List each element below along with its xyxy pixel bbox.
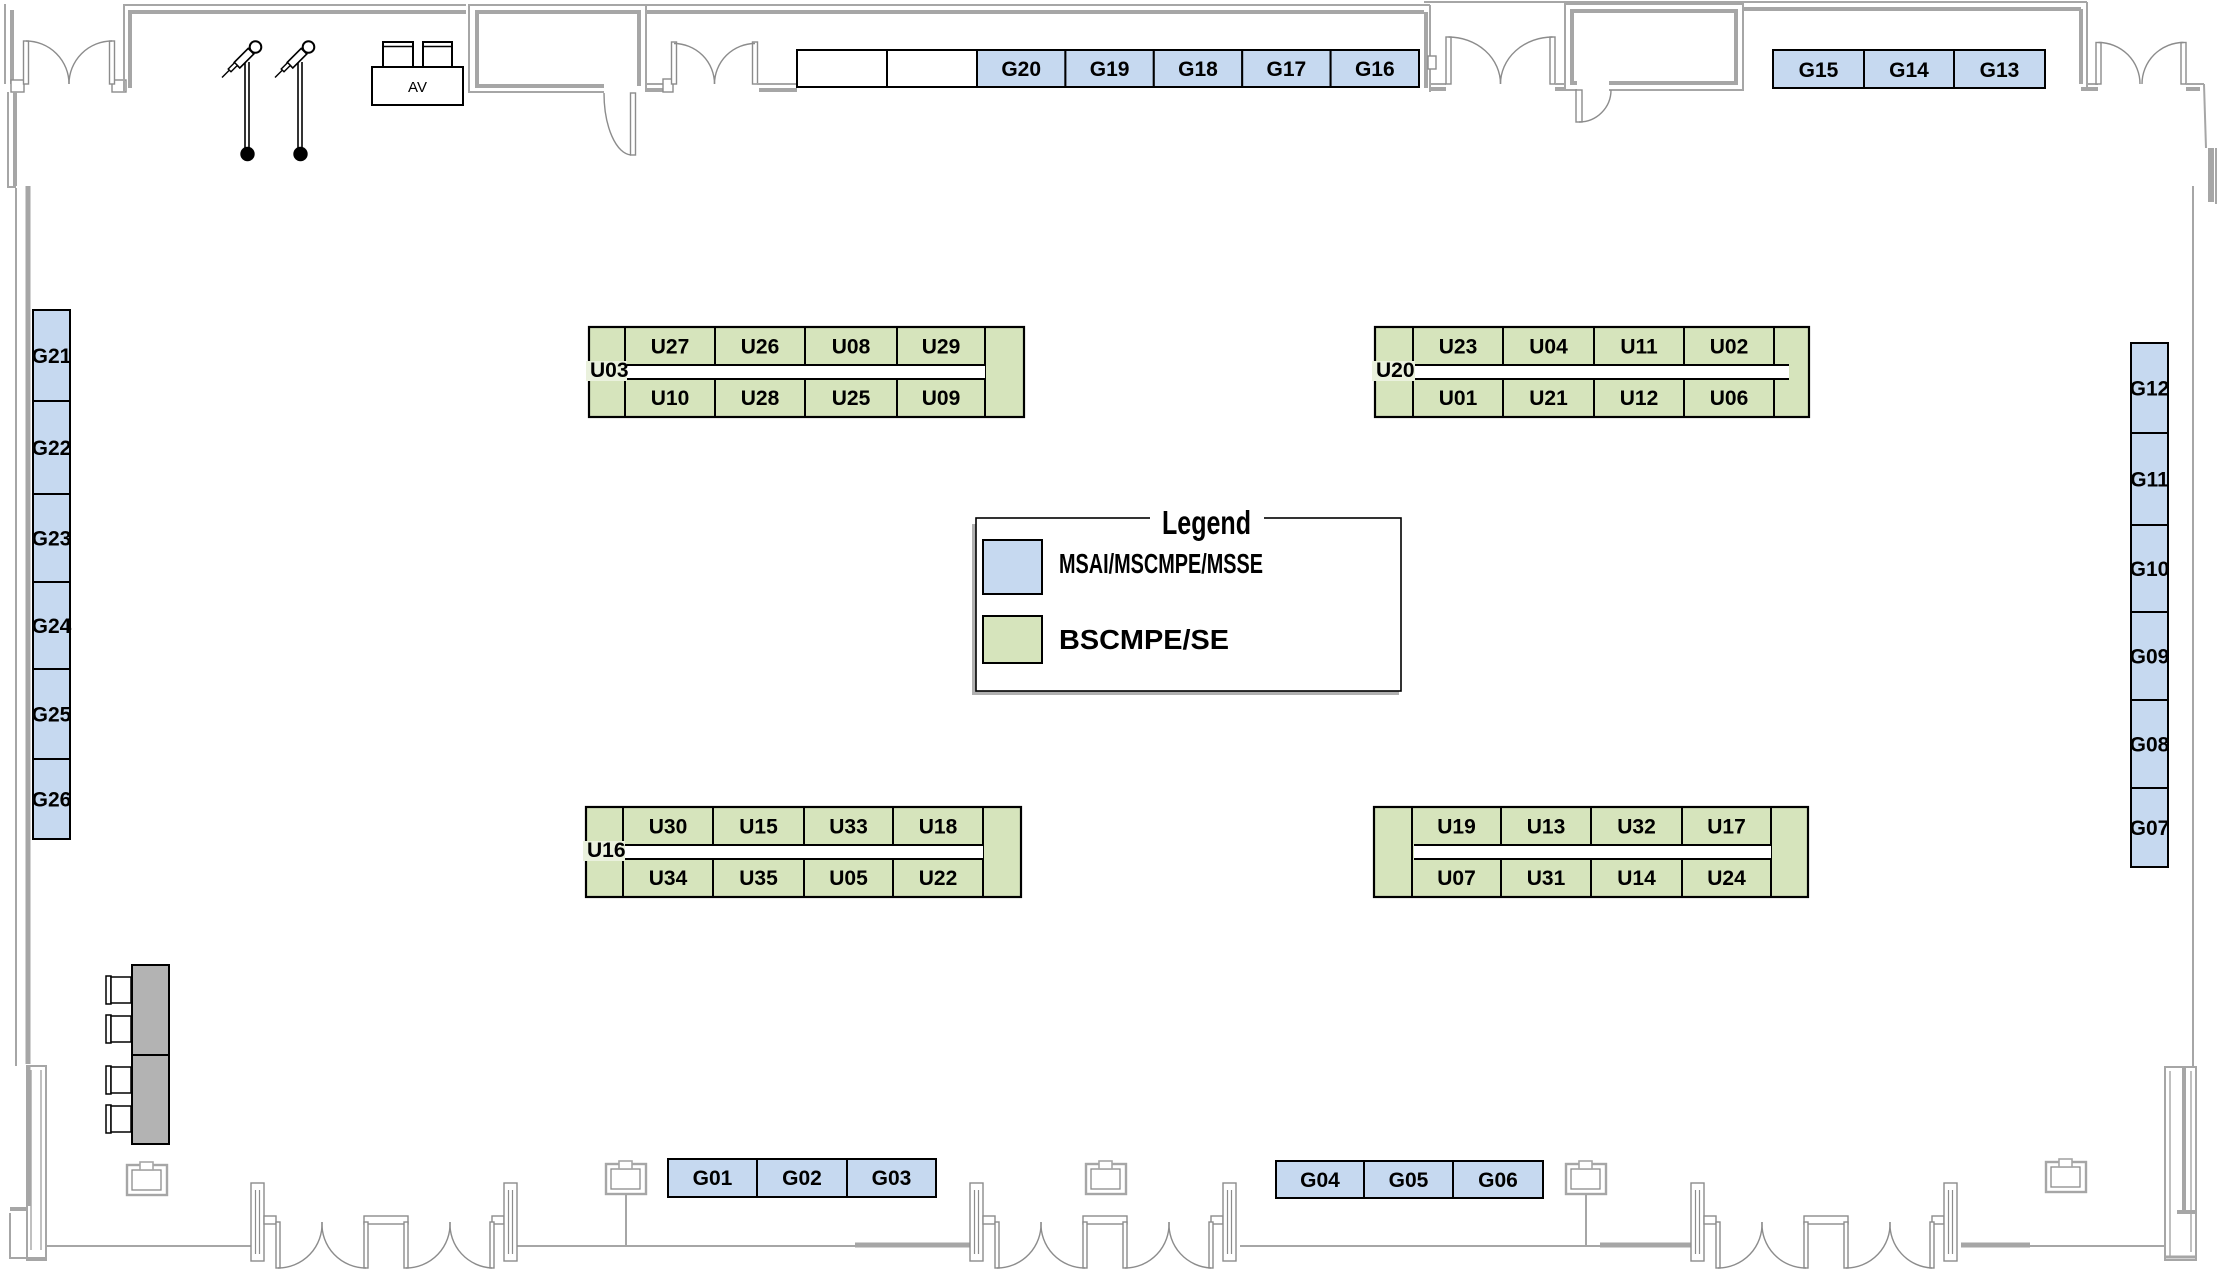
svg-text:U34: U34	[649, 867, 688, 890]
svg-text:G13: G13	[1980, 59, 2020, 82]
svg-text:U11: U11	[1620, 336, 1658, 359]
svg-text:U19: U19	[1437, 816, 1476, 839]
svg-text:G21: G21	[32, 345, 72, 368]
svg-text:U06: U06	[1710, 387, 1749, 410]
svg-text:G06: G06	[1478, 1169, 1518, 1192]
svg-text:U05: U05	[829, 867, 868, 890]
svg-text:G01: G01	[693, 1167, 733, 1190]
svg-text:G15: G15	[1799, 59, 1839, 82]
svg-text:U27: U27	[651, 336, 690, 359]
svg-text:U10: U10	[651, 387, 690, 410]
svg-text:U33: U33	[829, 816, 868, 839]
svg-text:G12: G12	[2130, 378, 2170, 401]
svg-text:U29: U29	[922, 336, 961, 359]
svg-text:G07: G07	[2130, 817, 2170, 840]
svg-text:U18: U18	[919, 816, 958, 839]
svg-text:U17: U17	[1707, 816, 1746, 839]
svg-text:U22: U22	[919, 867, 958, 890]
svg-text:G09: G09	[2130, 646, 2170, 669]
svg-text:U13: U13	[1527, 816, 1566, 839]
svg-text:U04: U04	[1529, 336, 1568, 359]
svg-text:U12: U12	[1620, 387, 1659, 410]
svg-text:G16: G16	[1355, 58, 1395, 81]
svg-text:U01: U01	[1439, 387, 1478, 410]
svg-text:G17: G17	[1267, 58, 1307, 81]
svg-text:G10: G10	[2130, 558, 2170, 581]
svg-text:G26: G26	[32, 789, 72, 812]
svg-text:G18: G18	[1178, 58, 1218, 81]
svg-text:AV: AV	[408, 79, 427, 96]
svg-text:G11: G11	[2130, 469, 2169, 492]
svg-text:U16: U16	[587, 839, 626, 862]
svg-text:U30: U30	[649, 816, 688, 839]
svg-text:U23: U23	[1439, 336, 1478, 359]
svg-text:U14: U14	[1617, 867, 1656, 890]
svg-text:U32: U32	[1617, 816, 1656, 839]
svg-text:U03: U03	[590, 359, 629, 382]
svg-text:U02: U02	[1710, 336, 1749, 359]
svg-text:G08: G08	[2130, 734, 2170, 757]
svg-text:G19: G19	[1090, 58, 1130, 81]
svg-text:U21: U21	[1529, 387, 1568, 410]
svg-text:G14: G14	[1889, 59, 1929, 82]
svg-text:U35: U35	[739, 867, 778, 890]
svg-text:G20: G20	[1001, 58, 1041, 81]
svg-text:G23: G23	[32, 528, 72, 551]
svg-text:U09: U09	[922, 387, 961, 410]
svg-text:U07: U07	[1437, 867, 1476, 890]
svg-text:MSAI/MSCMPE/MSSE: MSAI/MSCMPE/MSSE	[1059, 548, 1263, 579]
svg-text:G25: G25	[32, 704, 72, 727]
svg-text:G03: G03	[872, 1167, 912, 1190]
svg-text:U26: U26	[741, 336, 780, 359]
svg-text:G22: G22	[32, 437, 72, 460]
svg-text:U08: U08	[832, 336, 871, 359]
svg-text:Legend: Legend	[1162, 504, 1251, 541]
svg-text:U25: U25	[832, 387, 871, 410]
svg-text:U28: U28	[741, 387, 780, 410]
svg-text:G24: G24	[32, 615, 72, 638]
svg-text:U24: U24	[1707, 867, 1746, 890]
svg-text:U20: U20	[1376, 359, 1415, 382]
svg-text:G05: G05	[1389, 1169, 1429, 1192]
svg-text:G04: G04	[1300, 1169, 1340, 1192]
svg-text:U31: U31	[1527, 867, 1566, 890]
svg-text:U15: U15	[739, 816, 778, 839]
svg-text:G02: G02	[782, 1167, 822, 1190]
svg-text:BSCMPE/SE: BSCMPE/SE	[1059, 624, 1229, 655]
